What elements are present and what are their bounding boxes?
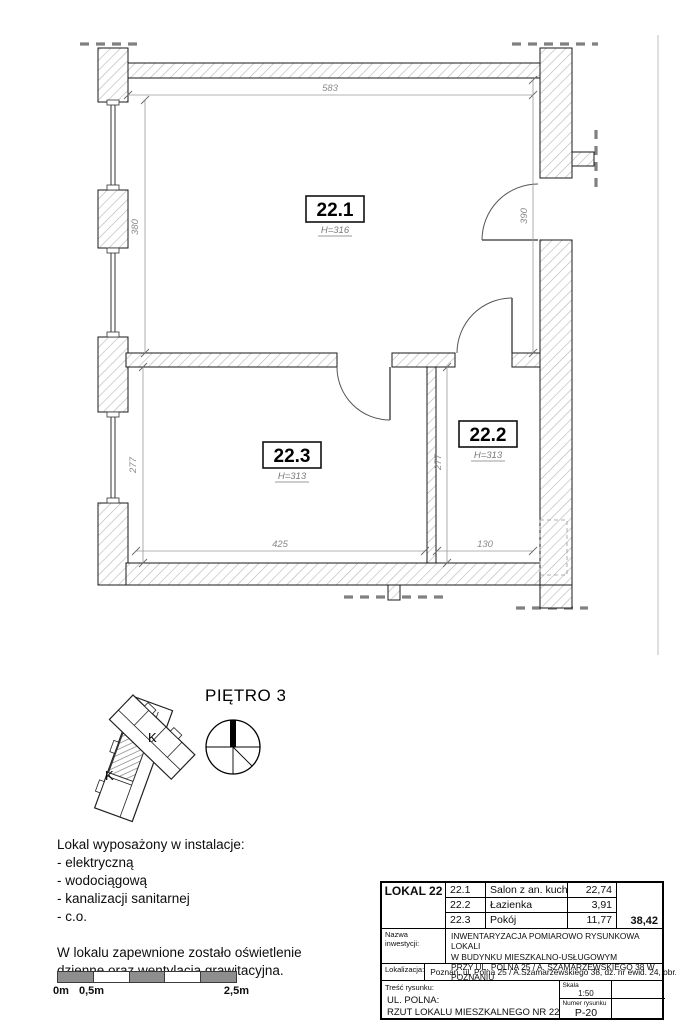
stair-label-1: K	[148, 730, 157, 745]
room-label-22-3: 22.3 H=313	[263, 442, 321, 482]
room-no: 22.3	[446, 913, 486, 928]
door-room-22-2	[457, 298, 512, 353]
floor-plan: 583 380 390 277 277 425	[0, 0, 676, 676]
lokal-label: LOKAL 22	[382, 883, 446, 928]
dimension-bottom-right: 130	[433, 539, 537, 555]
scale-bar-segments	[57, 971, 237, 983]
install-title: Lokal wyposażony w instalacje:	[57, 836, 302, 854]
scale-label-25: 2,5m	[224, 985, 249, 997]
scale-label-0: 0m	[53, 985, 69, 997]
scale-segment	[165, 972, 201, 982]
investment-name: INWENTARYZACJA POMIAROWO RYSUNKOWA LOKAL…	[446, 929, 662, 963]
walls	[98, 48, 594, 608]
drawing-title-row: Treść rysunku: UL. POLNA: RZUT LOKALU MI…	[382, 981, 662, 1018]
room-no: 22.1	[446, 883, 486, 898]
dimension-right-upper: 390	[519, 76, 537, 357]
room-area: 22,74	[568, 883, 617, 898]
investment-name-row: Nazwa inwestycji: INWENTARYZACJA POMIARO…	[382, 929, 662, 964]
dim-277-left: 277	[128, 456, 139, 474]
total-area: 38,42	[617, 883, 662, 928]
room-number: 22.1	[317, 200, 354, 221]
room-number: 22.3	[274, 446, 311, 467]
dim-380: 380	[130, 218, 141, 235]
dimension-top: 583	[124, 83, 537, 99]
scale-segment	[58, 972, 94, 982]
dim-425: 425	[272, 539, 289, 550]
empty-cell	[612, 999, 665, 1018]
dim-130: 130	[477, 539, 494, 550]
room-height: H=313	[474, 450, 503, 461]
room-name: Łazienka	[486, 898, 568, 913]
window-3	[107, 412, 119, 503]
scale-segment	[201, 972, 236, 982]
dimension-left-lower: 277	[128, 363, 147, 567]
room-number: 22.2	[470, 425, 507, 446]
room-height: H=316	[321, 225, 350, 236]
install-item: - kanalizacji sanitarnej	[57, 890, 302, 908]
investment-label: Nazwa inwestycji:	[382, 929, 446, 963]
location-row: Lokalizacja: Poznań, ul. Polna 25 / A.Sz…	[382, 964, 662, 981]
title-block: LOKAL 22 22.1 Salon z an. kuch. 22,74 22…	[380, 881, 664, 1020]
scale-and-number: Skala 1:50 Numer rysunku P-20	[560, 981, 665, 1018]
dimension-bottom-left: 425	[132, 539, 429, 555]
install-item: - elektryczną	[57, 854, 302, 872]
drawing-title-line2: RZUT LOKALU MIESZKALNEGO NR 22	[382, 1006, 559, 1018]
room-label-22-2: 22.2 H=313	[459, 421, 517, 461]
continuation-dashes	[80, 44, 598, 608]
stair-label-2: K	[105, 768, 114, 783]
scale-segment	[130, 972, 166, 982]
dim-277-middle: 277	[433, 453, 444, 471]
building-outline	[90, 691, 198, 821]
drawing-title: Treść rysunku: UL. POLNA: RZUT LOKALU MI…	[382, 981, 560, 1018]
installation-notes: Lokal wyposażony w instalacje: - elektry…	[57, 836, 302, 980]
scale-segment	[94, 972, 130, 982]
page: 583 380 390 277 277 425	[0, 0, 676, 1024]
window-1	[107, 100, 119, 190]
scale-bar: 0m 0,5m 2,5m	[57, 971, 237, 1003]
scale-cell: Skala 1:50	[560, 981, 612, 999]
dimension-left-upper: 380	[130, 96, 149, 357]
floor-label: PIĘTRO 3	[205, 686, 285, 705]
area-table: LOKAL 22 22.1 Salon z an. kuch. 22,74 22…	[382, 883, 662, 929]
empty-cell	[612, 981, 665, 999]
room-label-22-1: 22.1 H=316	[306, 196, 364, 236]
door-room-22-3	[337, 367, 390, 420]
lighting-note-line1: W lokalu zapewnione zostało oświetlenie	[57, 944, 302, 962]
install-item: - wodociągową	[57, 872, 302, 890]
dim-583: 583	[322, 83, 339, 94]
room-area: 11,77	[568, 913, 617, 928]
room-name: Pokój	[486, 913, 568, 928]
north-arrow	[206, 720, 260, 774]
location-label: Lokalizacja:	[382, 964, 425, 980]
drawing-number-cell: Numer rysunku P-20	[560, 999, 612, 1018]
room-no: 22.2	[446, 898, 486, 913]
scale-label-05: 0,5m	[79, 985, 104, 997]
room-area: 3,91	[568, 898, 617, 913]
location-value: Poznań, ul. Polna 25 / A.Szamarzewskiego…	[425, 964, 676, 980]
room-name: Salon z an. kuch.	[486, 883, 568, 898]
drawing-title-label: Treść rysunku:	[382, 981, 559, 992]
install-item: - c.o.	[57, 908, 302, 926]
window-2	[107, 248, 119, 337]
dim-390: 390	[519, 207, 530, 224]
key-plan: PIĘTRO 3	[55, 675, 285, 840]
room-height: H=313	[278, 471, 307, 482]
drawing-title-line1: UL. POLNA:	[382, 992, 559, 1006]
